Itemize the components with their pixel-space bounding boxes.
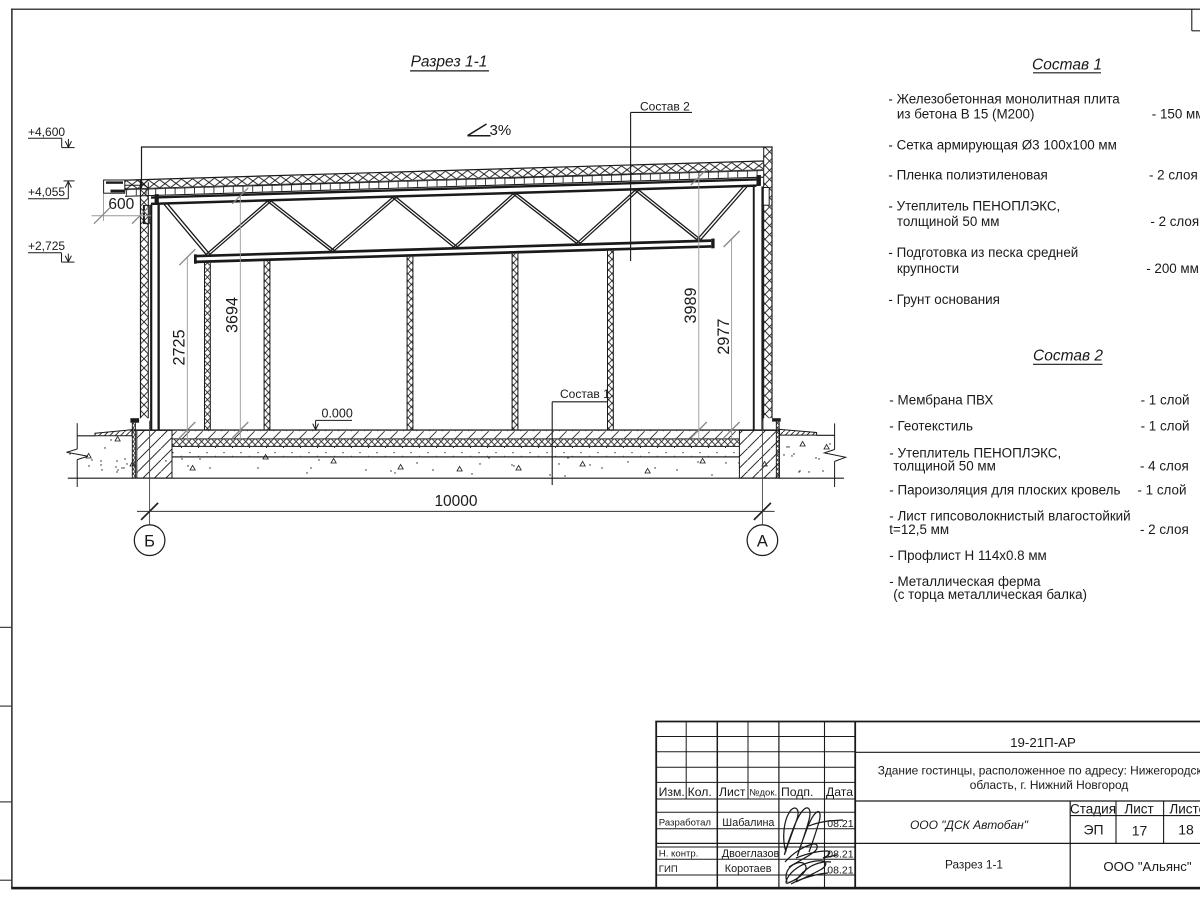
svg-text:Состав 1: Состав 1 [1032,56,1102,73]
svg-text:Листов: Листов [1169,801,1200,816]
svg-text:t=12,5 мм: t=12,5 мм [889,522,949,537]
svg-text:Лист: Лист [1124,801,1153,816]
svg-text:2725: 2725 [171,329,189,365]
svg-text:3694: 3694 [224,297,242,333]
svg-text:№док.: №док. [749,787,777,798]
svg-text:- Пленка полиэтиленовая: - Пленка полиэтиленовая [888,167,1047,182]
svg-text:Подп.: Подп. [781,785,813,799]
svg-text:2977: 2977 [715,319,733,355]
svg-text:+4,600: +4,600 [28,125,65,139]
svg-text:- Пароизоляция для плоских кро: - Пароизоляция для плоских кровель [889,483,1120,498]
svg-text:+2,725: +2,725 [28,239,65,253]
svg-text:08.21: 08.21 [827,864,853,876]
svg-text:- Подготовка из песка средней: - Подготовка из песка средней [888,245,1078,260]
svg-text:- Профлист Н 114х0.8 мм: - Профлист Н 114х0.8 мм [889,548,1046,563]
svg-text:- Железобетонная монолитная п: - Железобетонная монолитная плита [888,92,1120,107]
svg-text:Шабалина: Шабалина [722,817,774,829]
svg-text:3989: 3989 [682,287,700,323]
svg-text:- 150 мм: - 150 мм [1152,106,1200,121]
svg-text:Двоеглазов: Двоеглазов [722,848,780,860]
svg-text:крупности: крупности [897,261,959,276]
svg-text:- 200 мм: - 200 мм [1146,261,1199,276]
svg-text:Стадия: Стадия [1070,801,1116,816]
svg-text:- 2 слоя: - 2 слоя [1149,167,1198,182]
svg-text:Кол.: Кол. [688,785,712,799]
svg-text:- 1 слой: - 1 слой [1141,393,1190,408]
svg-text:из бетона В 15 (М200): из бетона В 15 (М200) [897,106,1035,121]
svg-text:Б: Б [144,532,155,550]
svg-text:- 2 слоя: - 2 слоя [1140,522,1189,537]
svg-text:ООО "ДСК Автобан": ООО "ДСК Автобан" [910,818,1029,832]
svg-text:Состав 2: Состав 2 [640,100,690,114]
svg-text:08.21: 08.21 [827,849,853,861]
svg-text:19-21П-АР: 19-21П-АР [1010,735,1076,750]
svg-text:Н. контр.: Н. контр. [659,848,699,859]
svg-text:ГИП: ГИП [659,864,678,875]
svg-text:- Сетка армирующая Ø3 100х100: - Сетка армирующая Ø3 100х100 мм [888,138,1116,153]
svg-text:Коротаев: Коротаев [725,863,772,875]
svg-text:- Грунт основания: - Грунт основания [888,292,999,307]
svg-text:17: 17 [1132,822,1148,838]
svg-text:толщиной 50 мм: толщиной 50 мм [893,459,996,474]
svg-text:Разработал: Разработал [659,818,711,829]
svg-text:- 1 слой: - 1 слой [1138,483,1187,498]
svg-text:18: 18 [1178,821,1194,837]
svg-text:(с торца металлическая балка): (с торца металлическая балка) [893,587,1087,602]
svg-text:Здание гостинцы, расположенное: Здание гостинцы, расположенное по адресу… [878,763,1200,777]
svg-text:- Геотекстиль: - Геотекстиль [889,418,973,433]
svg-text:3%: 3% [490,122,512,139]
svg-text:Изм.: Изм. [659,785,685,799]
svg-text:600: 600 [108,196,134,213]
svg-text:ООО "Альянс": ООО "Альянс" [1103,859,1191,874]
svg-text:Лист: Лист [719,785,746,799]
svg-text:+4,055: +4,055 [28,185,65,199]
svg-text:ЭП: ЭП [1083,821,1103,837]
svg-text:Разрез 1-1: Разрез 1-1 [411,54,488,71]
svg-text:- 4 слоя: - 4 слоя [1140,459,1189,474]
svg-text:10000: 10000 [434,493,477,510]
svg-text:область, г. Нижний Новгород: область, г. Нижний Новгород [970,778,1129,792]
svg-text:толщиной 50 мм: толщиной 50 мм [897,214,1000,229]
svg-text:А: А [757,532,768,550]
svg-text:Дата: Дата [826,785,853,799]
svg-text:- 1 слой: - 1 слой [1141,418,1190,433]
svg-text:- Утеплитель ПЕНОПЛЭКС,: - Утеплитель ПЕНОПЛЭКС, [888,199,1060,214]
svg-text:Состав 2: Состав 2 [1033,348,1103,365]
svg-text:Разрез 1-1: Разрез 1-1 [945,858,1003,872]
svg-text:Состав 1: Состав 1 [560,387,610,401]
svg-text:- 2 слоя: - 2 слоя [1150,214,1199,229]
svg-text:- Мембрана ПВХ: - Мембрана ПВХ [889,393,993,408]
svg-text:0.000: 0.000 [322,407,353,421]
